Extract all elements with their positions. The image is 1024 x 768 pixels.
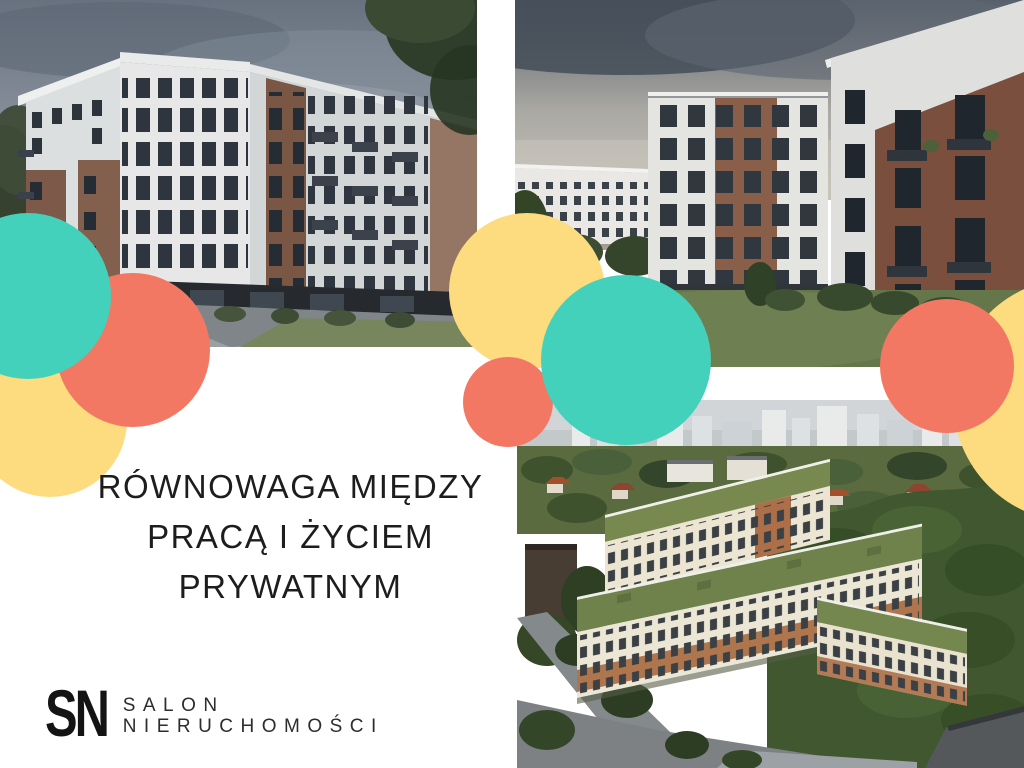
decor-circle-teal-middle xyxy=(541,275,711,445)
decor-circle-coral-middle xyxy=(463,357,553,447)
logo-monogram: SN xyxy=(45,686,107,740)
center-building xyxy=(648,92,828,304)
headline-line-2: PRACĄ I ŻYCIEM xyxy=(33,512,548,562)
headline-line-1: RÓWNOWAGA MIĘDZY xyxy=(33,462,548,512)
decor-circle-coral-right xyxy=(880,299,1014,433)
aerial-view-illustration xyxy=(517,400,1024,768)
photo-aerial-view xyxy=(517,400,1024,768)
logo-wordmark: SALON NIERUCHOMOŚCI xyxy=(123,686,384,737)
brand-logo: SN SALON NIERUCHOMOŚCI xyxy=(45,686,384,740)
logo-name-line-2: NIERUCHOMOŚCI xyxy=(123,716,384,737)
logo-name-line-1: SALON xyxy=(123,695,384,716)
headline-line-3: PRYWATNYM xyxy=(33,562,548,612)
poster: RÓWNOWAGA MIĘDZY PRACĄ I ŻYCIEM PRYWATNY… xyxy=(0,0,1024,768)
headline: RÓWNOWAGA MIĘDZY PRACĄ I ŻYCIEM PRYWATNY… xyxy=(33,462,548,612)
